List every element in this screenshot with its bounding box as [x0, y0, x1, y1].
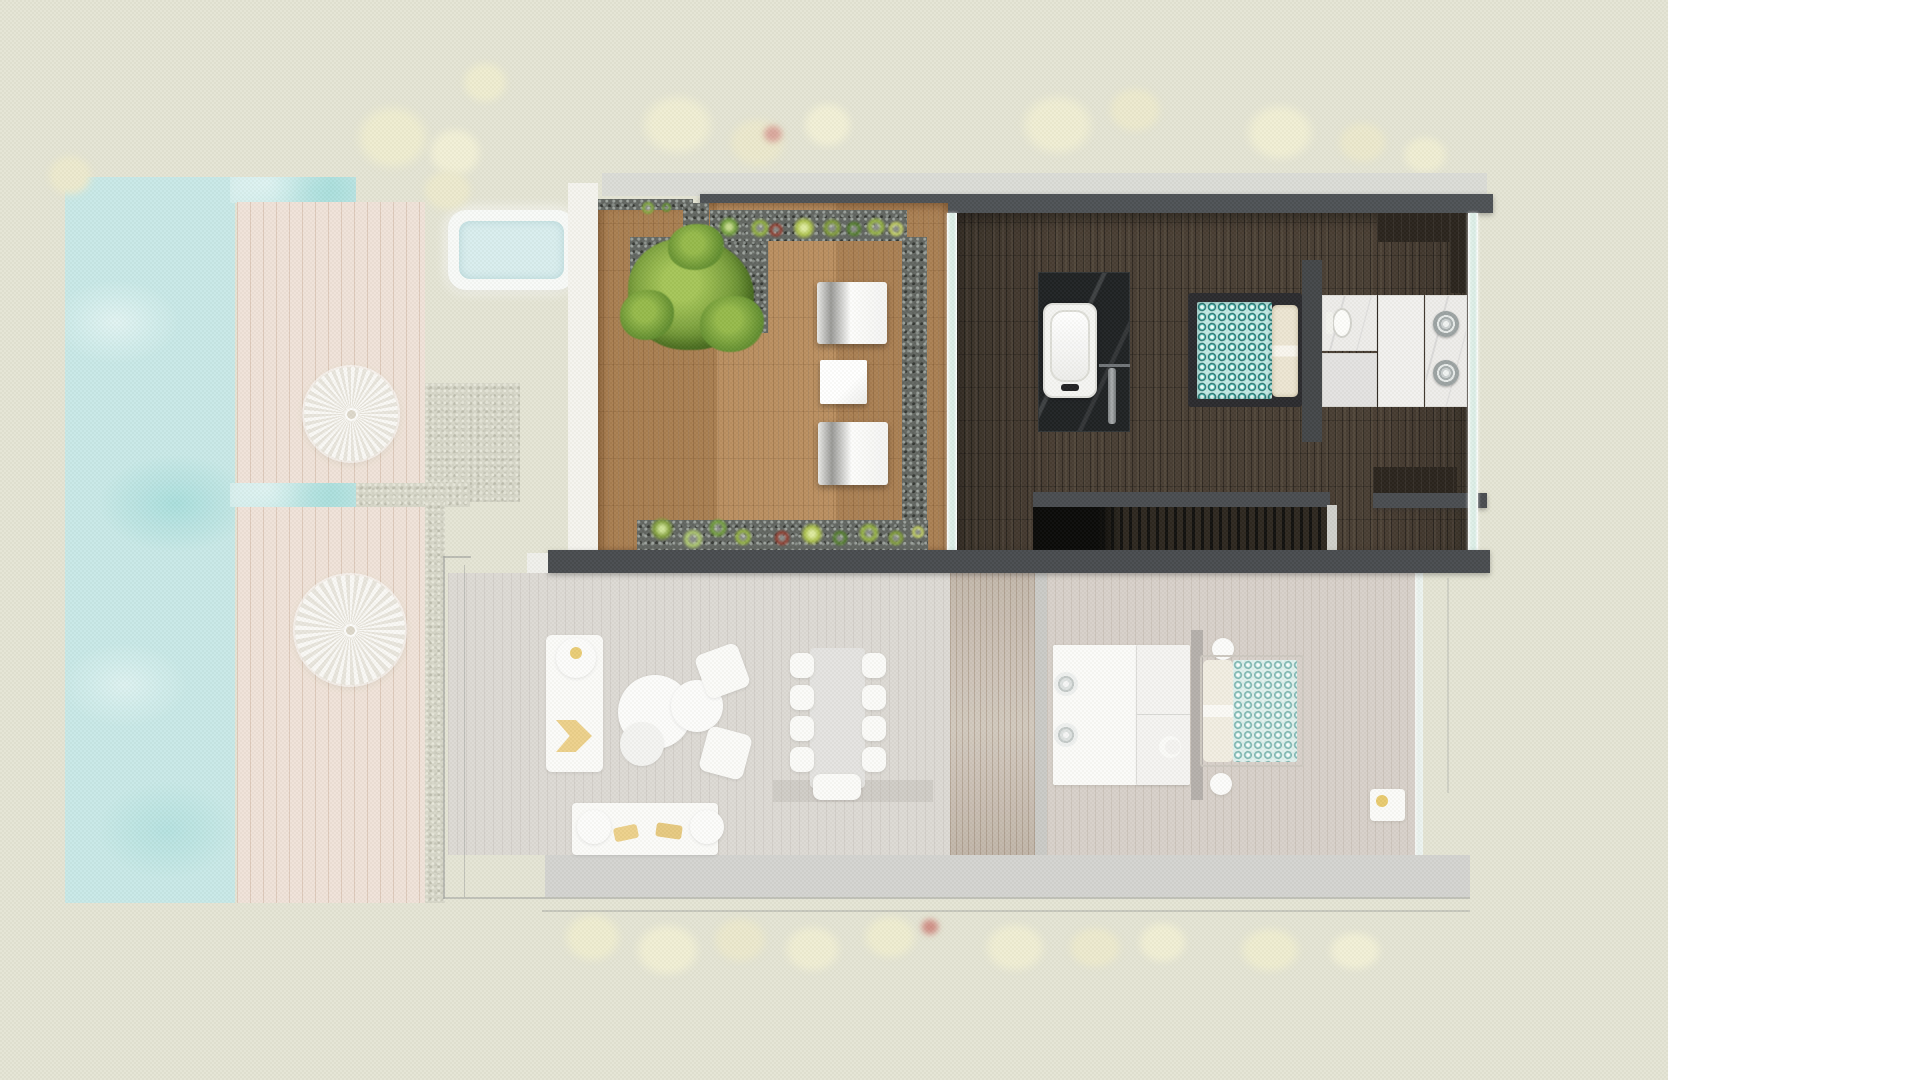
bathtub	[1043, 303, 1097, 398]
bed-pillows	[1272, 305, 1298, 397]
sun-lounger	[818, 422, 888, 485]
bathroom-tile-lower	[1322, 353, 1377, 407]
headboard-wall	[1302, 260, 1322, 442]
glass-wall-right	[1468, 213, 1478, 553]
bed-quilt	[1197, 302, 1272, 399]
plant-pot-red	[765, 219, 787, 241]
plant-pot	[659, 200, 674, 215]
floor-plan-canvas	[0, 0, 1920, 1080]
bathroom-tile-walkway	[1378, 295, 1424, 407]
plant-pot	[704, 514, 732, 542]
wall-band-bottom	[548, 550, 1490, 573]
toilet	[1326, 308, 1352, 338]
plant-pot-red	[770, 526, 794, 550]
vanity-sink	[1433, 360, 1459, 386]
upper-floor-plan	[0, 0, 1920, 1080]
glass-wall-terrace	[947, 213, 957, 553]
side-path-white	[568, 183, 598, 573]
planter-gravel-right	[902, 237, 927, 529]
plant-pot	[908, 522, 928, 542]
plant-pot	[714, 212, 744, 242]
towel-rail	[1108, 368, 1116, 424]
page-white-margin	[1668, 0, 1920, 1080]
stairwell	[1033, 507, 1330, 553]
stair-edge-white	[1327, 505, 1337, 553]
plant-pot	[645, 512, 679, 546]
vanity-sink	[1433, 311, 1459, 337]
wardrobe	[1373, 467, 1457, 493]
platform-divider	[1099, 364, 1130, 367]
closet-top	[1377, 213, 1460, 242]
wall-stub-right	[1450, 213, 1468, 293]
sun-lounger	[817, 282, 887, 344]
plant-pot	[828, 526, 852, 550]
plant-pot	[638, 198, 658, 218]
plant-pot	[854, 518, 884, 548]
lounger-side-table	[820, 360, 867, 404]
plant-pot	[788, 212, 820, 244]
wall-band-end-cap	[527, 553, 548, 573]
roof-edge-light	[602, 173, 1487, 196]
plant-pot	[884, 526, 908, 550]
plant-pot	[884, 217, 908, 241]
plant-pot	[730, 524, 756, 550]
stair-railing	[1033, 492, 1330, 507]
plant-pot	[796, 518, 828, 550]
